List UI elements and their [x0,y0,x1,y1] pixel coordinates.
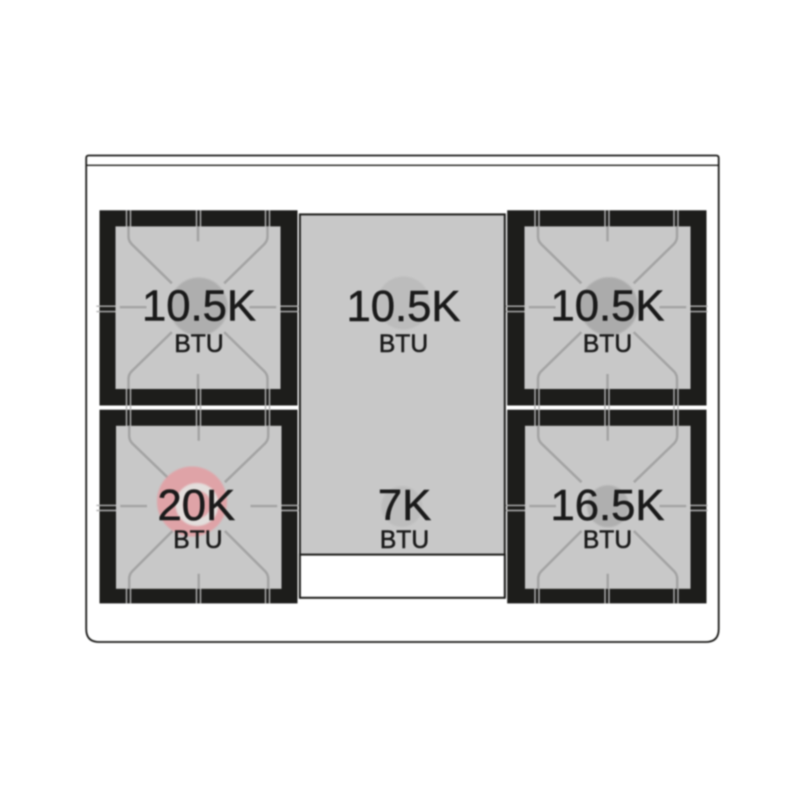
svg-text:BTU: BTU [173,527,222,554]
svg-text:BTU: BTU [379,331,428,358]
svg-text:10.5K: 10.5K [142,283,256,331]
svg-text:BTU: BTU [583,527,632,554]
svg-text:7K: 7K [378,482,431,530]
svg-text:BTU: BTU [380,527,429,554]
svg-text:BTU: BTU [174,331,223,358]
svg-text:10.5K: 10.5K [347,283,461,331]
svg-text:10.5K: 10.5K [551,283,665,331]
svg-text:16.5K: 16.5K [551,482,665,530]
svg-text:BTU: BTU [583,331,632,358]
svg-text:20K: 20K [158,482,236,530]
